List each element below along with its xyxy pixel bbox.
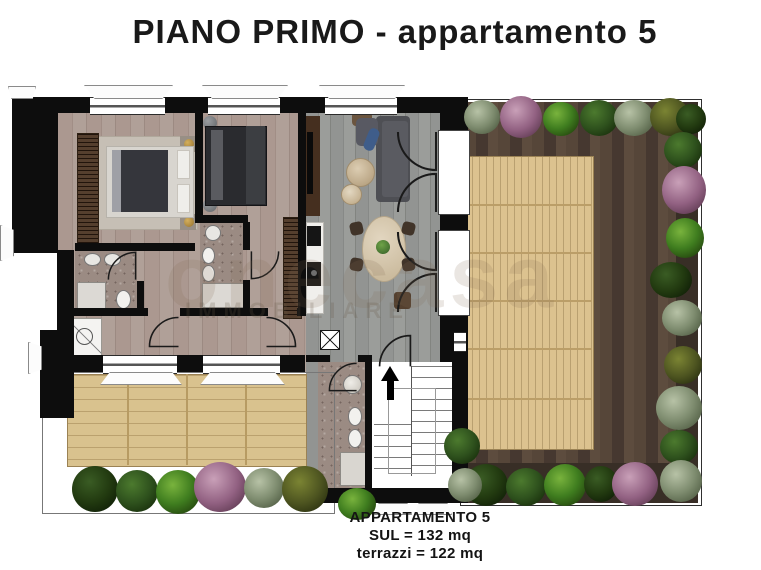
lower-deck-divider: [127, 374, 129, 465]
window-sill-left: [0, 225, 14, 261]
bush: [282, 466, 328, 512]
wall-below-bed1: [75, 243, 195, 251]
entrance-arrow-stem: [387, 381, 394, 400]
apartment-name: APPARTAMENTO 5: [300, 509, 540, 527]
bush: [506, 468, 546, 506]
toilet: [348, 407, 362, 426]
window-sill: [319, 85, 405, 99]
coffee-table: [346, 158, 375, 187]
french-door-leaf: [396, 130, 438, 172]
door-arc-bathroom2: [250, 250, 280, 280]
right-deck-divider: [464, 252, 592, 254]
right-deck-divider: [464, 348, 592, 350]
toilet: [202, 247, 215, 264]
wall-right-b: [440, 213, 468, 230]
wall-corridor-a: [57, 308, 148, 316]
bush: [544, 464, 586, 506]
french-door-leaf: [396, 172, 438, 214]
bush: [660, 460, 702, 502]
right-deck-divider: [464, 398, 592, 400]
bush-flowering: [662, 166, 706, 214]
folding-table: [320, 330, 340, 350]
bush: [664, 132, 702, 168]
bush: [650, 262, 692, 298]
window-kitchen-1: [103, 355, 177, 374]
door-arc-bathroom1: [107, 251, 137, 281]
door-arc-bathroom3: [328, 362, 358, 392]
wall-bath2-right-a: [243, 222, 250, 250]
floor-plan-page: PIANO PRIMO - appartamento 5: [0, 0, 761, 570]
window-sill-corner: [8, 86, 36, 99]
sink-round: [205, 225, 221, 241]
wall-living-left-upper: [298, 97, 306, 230]
bush: [464, 100, 500, 134]
bed2-pillows: [211, 130, 223, 200]
bush: [660, 430, 698, 464]
wall-left-step: [40, 330, 74, 418]
wall-stair-left: [365, 355, 372, 495]
dining-chair: [349, 257, 364, 272]
wall-corridor-b: [180, 308, 268, 316]
wardrobe-bedroom1: [77, 133, 99, 245]
kitchen-sink-bowl: [76, 328, 93, 345]
entrance-arrow-icon: [381, 366, 399, 381]
wall-between-bedrooms: [195, 113, 203, 222]
bed2-blanket: [246, 126, 265, 204]
right-deck-divider: [464, 300, 592, 302]
window-sill: [84, 85, 173, 99]
window-kitchen-2: [203, 355, 280, 374]
tv-screen: [307, 132, 313, 194]
bush: [444, 428, 480, 464]
lower-deck-divider: [245, 374, 247, 465]
shower-tray: [202, 283, 244, 308]
bush: [614, 100, 654, 136]
bed1-pillow: [177, 150, 190, 179]
bush: [664, 346, 702, 384]
window-bedroom2: [208, 97, 280, 115]
stair-void-outline: [388, 388, 436, 474]
window-sill: [100, 372, 182, 385]
lower-deck-divider: [186, 374, 188, 465]
french-door-leaf: [396, 272, 438, 314]
bush-flowering: [500, 96, 542, 138]
page-title: PIANO PRIMO - appartamento 5: [30, 13, 760, 51]
gold-lamp: [184, 217, 194, 227]
bush: [666, 218, 704, 258]
french-door-1: [438, 130, 470, 215]
window-stair-landing: [454, 332, 466, 352]
bush: [156, 470, 200, 514]
right-deck-divider: [464, 204, 592, 206]
door-arc-entry: [378, 334, 412, 368]
coffee-table-small: [341, 184, 362, 205]
kitchen-knob: [311, 270, 317, 276]
french-door-leaf: [396, 230, 438, 272]
window-sill-left: [28, 342, 42, 374]
bed1-throw: [112, 150, 121, 212]
wall-left: [12, 97, 58, 253]
apartment-terraces: terrazzi = 122 mq: [300, 545, 540, 563]
bush: [72, 466, 118, 512]
french-door-2: [438, 230, 470, 316]
door-arc-bedroom2: [265, 316, 297, 348]
bush: [580, 100, 618, 136]
shower-tray: [340, 452, 368, 486]
bush: [448, 468, 482, 502]
bush: [116, 470, 158, 512]
shower-tray: [77, 282, 106, 309]
table-plant: [376, 240, 390, 254]
apartment-sul: SUL = 132 mq: [300, 527, 540, 545]
bush-flowering: [612, 462, 658, 506]
bush-flowering: [194, 462, 246, 512]
door-arc-bedroom1: [148, 316, 180, 348]
bush: [656, 386, 702, 430]
window-bedroom1: [90, 97, 165, 115]
apartment-summary: APPARTAMENTO 5 SUL = 132 mq terrazzi = 1…: [300, 509, 540, 563]
bush: [676, 104, 706, 134]
bush: [543, 102, 579, 136]
window-sill: [200, 372, 285, 385]
bush: [662, 300, 702, 336]
bidet: [348, 429, 362, 448]
bed1-pillow: [177, 184, 190, 213]
bush: [244, 468, 284, 508]
bidet: [202, 265, 215, 282]
wall-stair-top-a: [306, 355, 330, 362]
window-sill: [202, 85, 288, 99]
wall-living-left-lower: [298, 217, 306, 316]
toilet: [116, 290, 131, 309]
kitchen-cooktop: [307, 226, 321, 246]
wall-bed2-bath2: [195, 215, 248, 223]
window-living: [325, 97, 397, 115]
sink: [84, 253, 101, 266]
